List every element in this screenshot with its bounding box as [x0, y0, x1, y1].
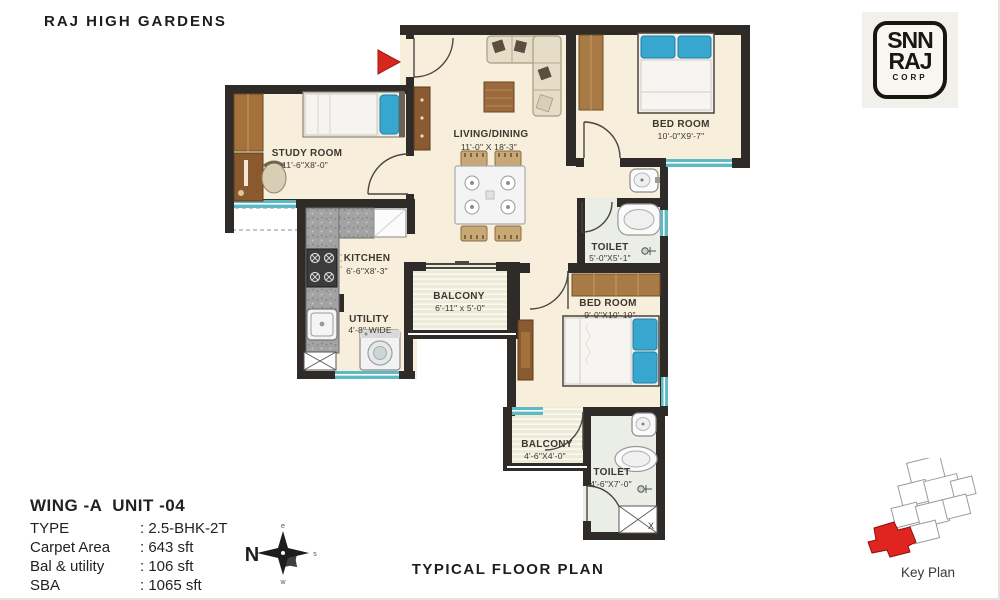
kitchen-duct: [304, 352, 336, 370]
living-dining-dims: 11'-0" X 18'-3": [461, 142, 517, 152]
info-label: TYPE: [30, 519, 140, 538]
info-row-carpet: Carpet Area : 643 sft: [30, 538, 228, 557]
wash-basin: [630, 169, 660, 192]
coffee-table: [484, 82, 514, 112]
balcony2-dims: 4'-6"X4'-0": [524, 451, 566, 461]
key-plan: Key Plan: [860, 458, 996, 580]
compass-south-label: s: [313, 551, 317, 558]
toilet2-duct: X: [619, 506, 657, 533]
info-value: : 1065 sft: [140, 576, 202, 595]
bedroom1-label: BED ROOM: [652, 119, 709, 130]
info-label: Bal & utility: [30, 557, 140, 576]
info-row-balcony: Bal & utility : 106 sft: [30, 557, 228, 576]
plan-caption: TYPICAL FLOOR PLAN: [393, 561, 623, 578]
info-label: SBA: [30, 576, 140, 595]
tv-cabinet: [414, 87, 430, 150]
utility-dims: 4'-8" WIDE: [348, 325, 392, 335]
key-plan-highlight-unit: [868, 522, 916, 557]
open-area-dashed: [228, 208, 298, 230]
compass-rose-icon: N e s w: [245, 523, 317, 586]
bedroom2-dims: 9'-0"X10'-10": [584, 310, 636, 320]
washing-machine: [360, 330, 400, 370]
window: [335, 371, 399, 379]
study-desk: [234, 153, 263, 201]
kitchen-dims: 6'-6"X8'-3": [346, 266, 388, 276]
info-value: : 643 sft: [140, 538, 193, 557]
dining-table: [455, 166, 525, 224]
bedroom2-label: BED ROOM: [579, 298, 636, 309]
toilet1-label: TOILET: [591, 242, 628, 253]
toilet2-dims: 4'-6"X7'-0": [590, 479, 632, 489]
unit-info-block: WING -A UNIT -04 TYPE : 2.5-BHK-2T Carpe…: [30, 496, 228, 595]
fridge: [374, 209, 406, 237]
info-row-type: TYPE : 2.5-BHK-2T: [30, 519, 228, 538]
study-bed: [303, 92, 405, 137]
info-value: : 106 sft: [140, 557, 193, 576]
entry-arrow-icon: [378, 50, 400, 74]
info-label: Carpet Area: [30, 538, 140, 557]
kitchen-label: KITCHEN: [344, 253, 391, 264]
study-room-label: STUDY ROOM: [272, 148, 343, 159]
floor-plan-page: RAJ HIGH GARDENS SNN RAJ CORP: [0, 0, 1000, 600]
compass-east-label: e: [281, 523, 285, 530]
study-wardrobe: [234, 94, 263, 151]
toilet2-sink: [632, 413, 656, 436]
bedroom1-bed: [638, 33, 714, 113]
compass-west-label: w: [279, 579, 286, 586]
kitchen-sink: [307, 309, 337, 340]
window: [512, 407, 543, 415]
balcony1-label: BALCONY: [433, 291, 485, 302]
window: [660, 210, 668, 236]
key-plan-label: Key Plan: [860, 565, 996, 580]
window: [661, 377, 668, 406]
bedroom1-dims: 10'-0"X9'-7": [658, 131, 705, 141]
bedroom2-wardrobe: [572, 274, 660, 296]
stove: [307, 249, 342, 287]
living-dining-label: LIVING/DINING: [453, 129, 528, 140]
toilet1-tub: [618, 204, 660, 235]
info-value: : 2.5-BHK-2T: [140, 519, 228, 538]
balcony2-label: BALCONY: [521, 439, 573, 450]
duct-label: X: [648, 521, 654, 531]
balcony1-dims: 6'-11" x 5'-0": [435, 303, 485, 313]
bedroom1-wardrobe: [579, 35, 603, 110]
toilet2-label: TOILET: [593, 467, 630, 478]
toilet1-dims: 5'-0"X5'-1": [589, 253, 631, 263]
unit-heading: WING -A UNIT -04: [30, 496, 228, 516]
compass-north-label: N: [245, 544, 259, 566]
utility-label: UTILITY: [349, 314, 389, 325]
key-plan-drawing: [860, 458, 996, 558]
study-room-dims: 11'-6"X8'-0": [282, 160, 328, 170]
window: [666, 159, 732, 167]
info-row-sba: SBA : 1065 sft: [30, 576, 228, 595]
bedroom2-bed: [563, 316, 659, 386]
bedroom2-cabinet: [518, 320, 533, 380]
